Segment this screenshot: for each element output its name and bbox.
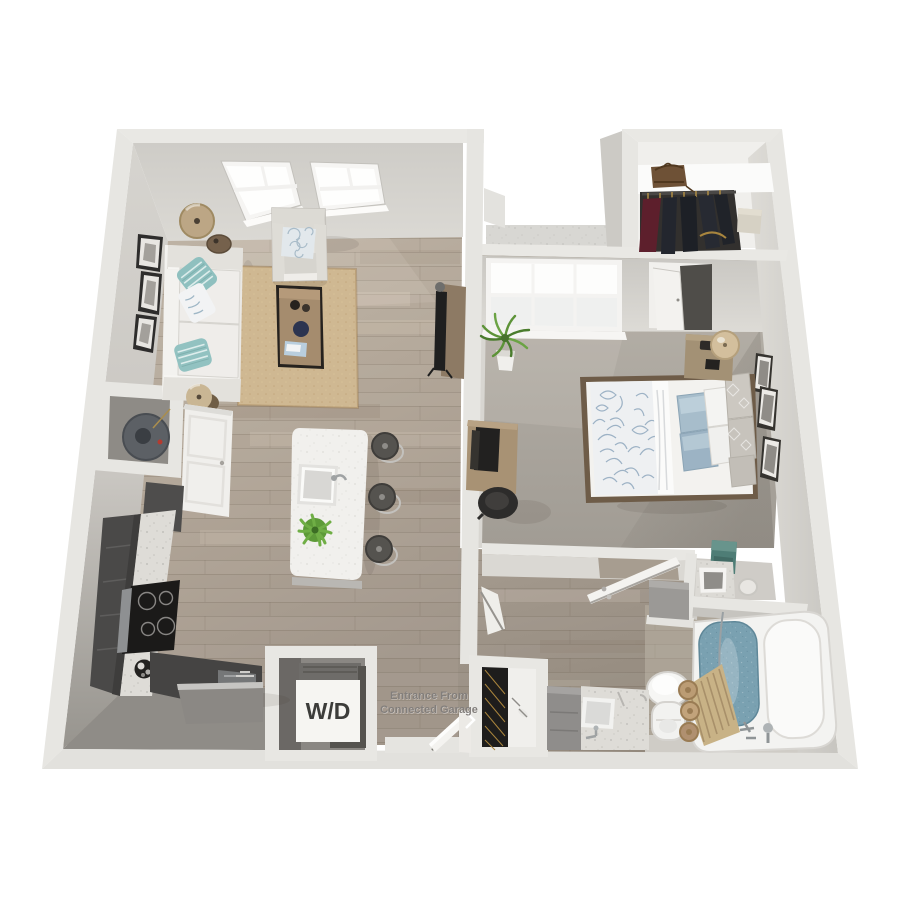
svg-text:W/D: W/D (306, 698, 351, 724)
svg-text:Connected Garage: Connected Garage (380, 704, 478, 716)
svg-text:Entrance From: Entrance From (390, 690, 468, 702)
